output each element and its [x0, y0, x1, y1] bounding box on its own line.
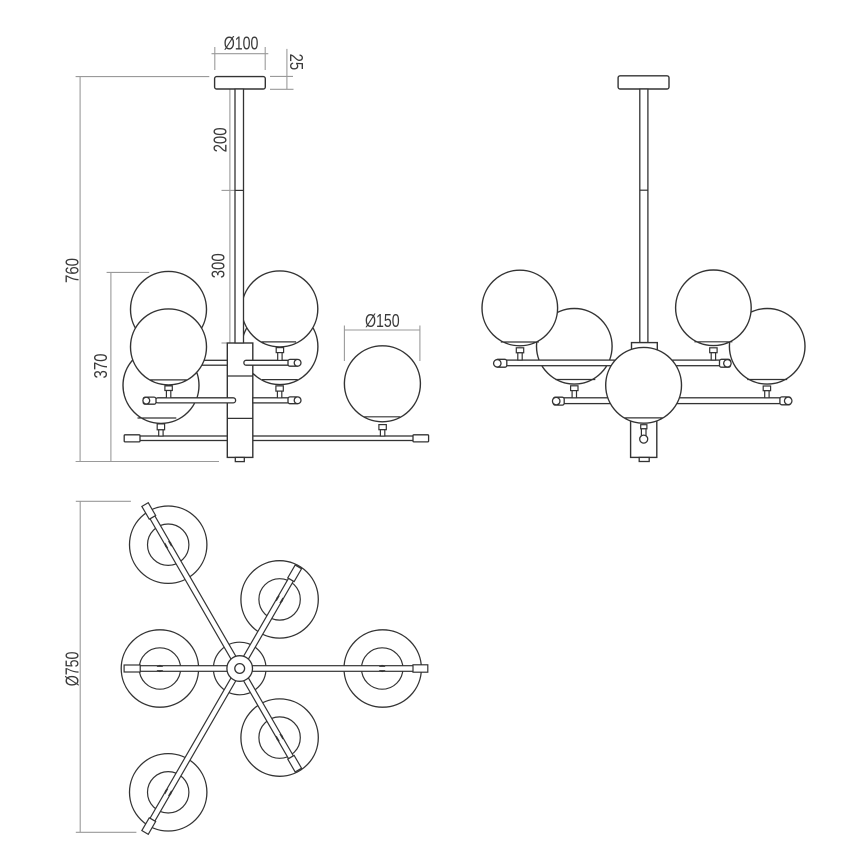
- svg-text:Ø100: Ø100: [224, 33, 259, 53]
- svg-text:200: 200: [210, 127, 230, 152]
- svg-text:Ø750: Ø750: [63, 652, 83, 687]
- svg-text:300: 300: [209, 253, 229, 278]
- svg-text:760: 760: [63, 258, 83, 283]
- svg-text:Ø150: Ø150: [365, 311, 400, 331]
- svg-text:25: 25: [286, 54, 306, 71]
- svg-text:370: 370: [91, 354, 111, 379]
